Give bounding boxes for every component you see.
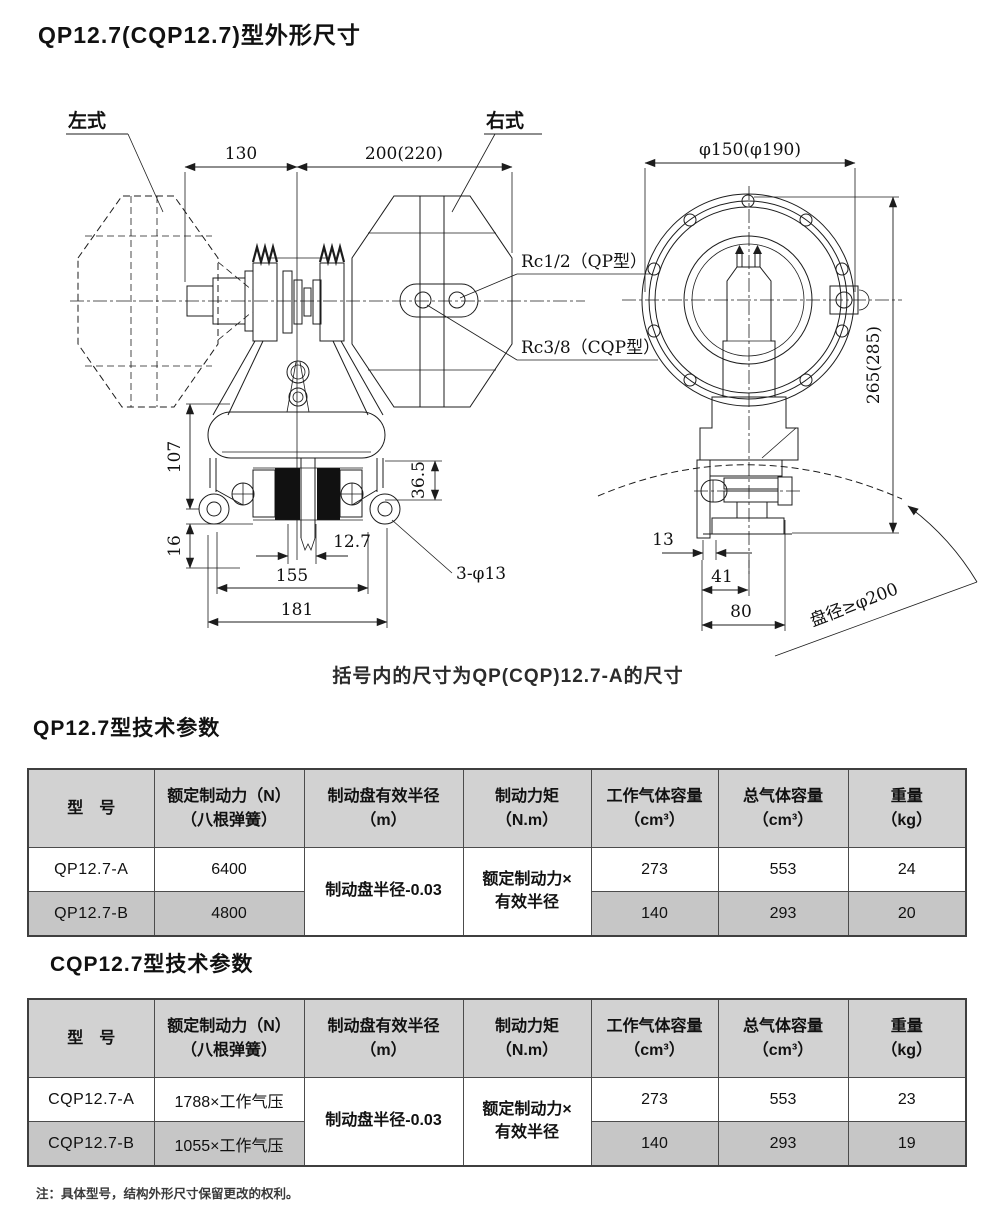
cell-force: 6400 [154,848,304,892]
col-header-weight: 重量（kg） [848,999,966,1078]
cell-force: 4800 [154,892,304,937]
cell-model: QP12.7-B [28,892,154,937]
cell-model: QP12.7-A [28,848,154,892]
spec-table-qp: 型 号 额定制动力（N）（八根弹簧） 制动盘有效半径（m） 制动力矩（N.m） … [27,768,967,937]
cell-radius-merged: 制动盘半径-0.03 [304,848,463,937]
dimension-drawing: 130 200(220) 左式 右式 Rc1/2（QP型） Rc3/8（CQP型… [0,0,1006,700]
dim-107-label: 107 [165,441,185,473]
cell-model: CQP12.7-A [28,1078,154,1122]
cell-work-volume: 140 [591,1122,718,1167]
disc-diameter-note: 盘径≥φ200 [807,579,901,631]
col-header-work-volume: 工作气体容量（cm³） [591,769,718,848]
cell-work-volume: 273 [591,1078,718,1122]
left-type-label: 左式 [68,109,106,132]
cell-weight: 23 [848,1078,966,1122]
datasheet-page: QP12.7(CQP12.7)型外形尺寸 [0,0,1006,1216]
dim-80-label: 80 [730,602,752,622]
col-header-total-volume: 总气体容量（cm³） [718,769,848,848]
port-qp-label: Rc1/2（QP型） [521,252,647,272]
cell-torque-merged: 额定制动力×有效半径 [463,848,591,937]
cell-torque-merged: 额定制动力×有效半径 [463,1078,591,1167]
dim-13-label: 13 [652,530,674,550]
dim-16-label: 16 [165,535,185,557]
col-header-force: 额定制动力（N）（八根弹簧） [154,999,304,1078]
cell-model: CQP12.7-B [28,1122,154,1167]
col-header-torque: 制动力矩（N.m） [463,769,591,848]
col-header-work-volume: 工作气体容量（cm³） [591,999,718,1078]
cell-weight: 24 [848,848,966,892]
dim-12-7-label: 12.7 [333,532,371,552]
dim-36-5-label: 36.5 [409,461,429,499]
cell-work-volume: 140 [591,892,718,937]
dim-155-label: 155 [276,566,308,586]
dim-265-285-label: 265(285) [864,326,884,404]
dim-3-phi13-label: 3-φ13 [456,564,506,584]
right-type-label: 右式 [485,109,524,132]
table-row: CQP12.7-A 1788×工作气压 制动盘半径-0.03 额定制动力×有效半… [28,1078,966,1122]
table-row: QP12.7-A 6400 制动盘半径-0.03 额定制动力×有效半径 273 … [28,848,966,892]
drawing-caption: 括号内的尺寸为QP(CQP)12.7-A的尺寸 [278,661,738,688]
cell-total-volume: 553 [718,1078,848,1122]
cell-force: 1055×工作气压 [154,1122,304,1167]
cell-weight: 20 [848,892,966,937]
dim-181-label: 181 [281,600,313,620]
col-header-radius: 制动盘有效半径（m） [304,999,463,1078]
dim-phi150-label: φ150(φ190) [699,140,801,160]
col-header-model: 型 号 [28,999,154,1078]
port-cqp-label: Rc3/8（CQP型） [521,338,660,358]
cell-total-volume: 293 [718,892,848,937]
cell-work-volume: 273 [591,848,718,892]
cell-weight: 19 [848,1122,966,1167]
table2-title: CQP12.7型技术参数 [50,948,253,978]
cell-total-volume: 293 [718,1122,848,1167]
dim-41-label: 41 [711,567,733,587]
cell-total-volume: 553 [718,848,848,892]
col-header-torque: 制动力矩（N.m） [463,999,591,1078]
col-header-total-volume: 总气体容量（cm³） [718,999,848,1078]
page-footnote: 注：具体型号，结构外形尺寸保留更改的权利。 [36,1183,299,1202]
col-header-model: 型 号 [28,769,154,848]
col-header-force: 额定制动力（N）（八根弹簧） [154,769,304,848]
col-header-weight: 重量（kg） [848,769,966,848]
table1-title: QP12.7型技术参数 [33,712,220,742]
dim-200-220-label: 200(220) [365,144,443,164]
cell-radius-merged: 制动盘半径-0.03 [304,1078,463,1167]
dim-130-label: 130 [225,144,257,164]
spec-table-cqp: 型 号 额定制动力（N）（八根弹簧） 制动盘有效半径（m） 制动力矩（N.m） … [27,998,967,1167]
col-header-radius: 制动盘有效半径（m） [304,769,463,848]
cell-force: 1788×工作气压 [154,1078,304,1122]
